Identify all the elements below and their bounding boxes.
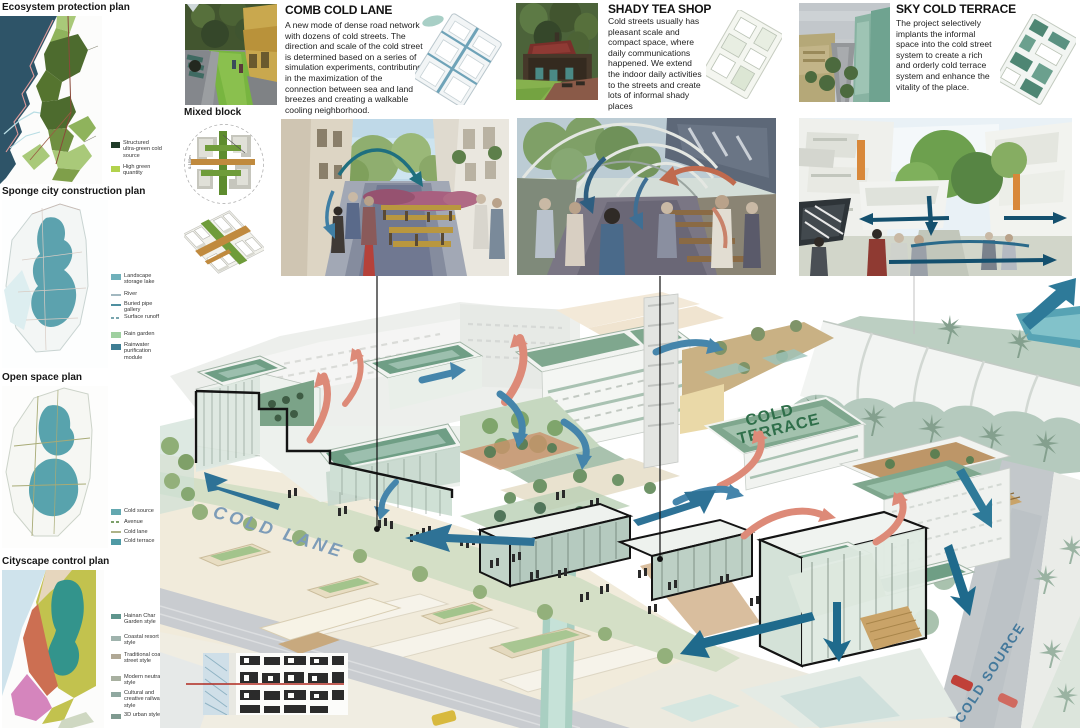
svg-text:0-150m: 0-150m (187, 155, 192, 169)
